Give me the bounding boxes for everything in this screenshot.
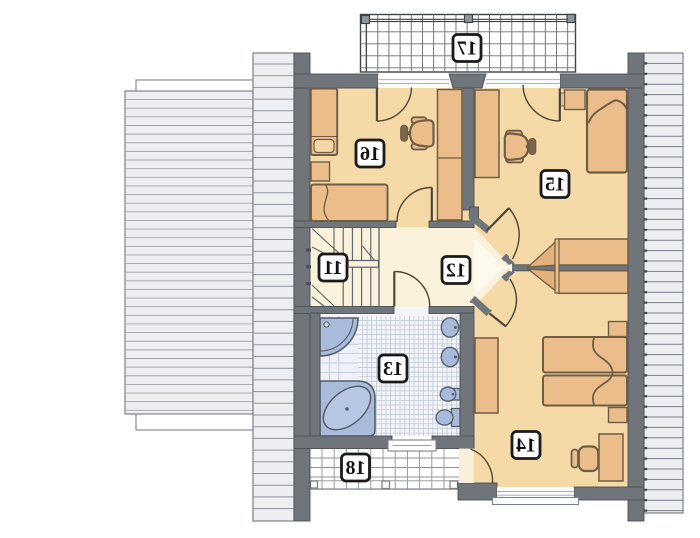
- svg-text:18: 18: [346, 457, 366, 479]
- svg-text:11: 11: [324, 257, 343, 279]
- svg-text:12: 12: [446, 260, 466, 282]
- svg-text:17: 17: [457, 38, 477, 60]
- svg-text:16: 16: [360, 143, 380, 165]
- svg-text:15: 15: [545, 174, 565, 196]
- svg-text:14: 14: [516, 435, 536, 457]
- svg-text:13: 13: [383, 358, 403, 380]
